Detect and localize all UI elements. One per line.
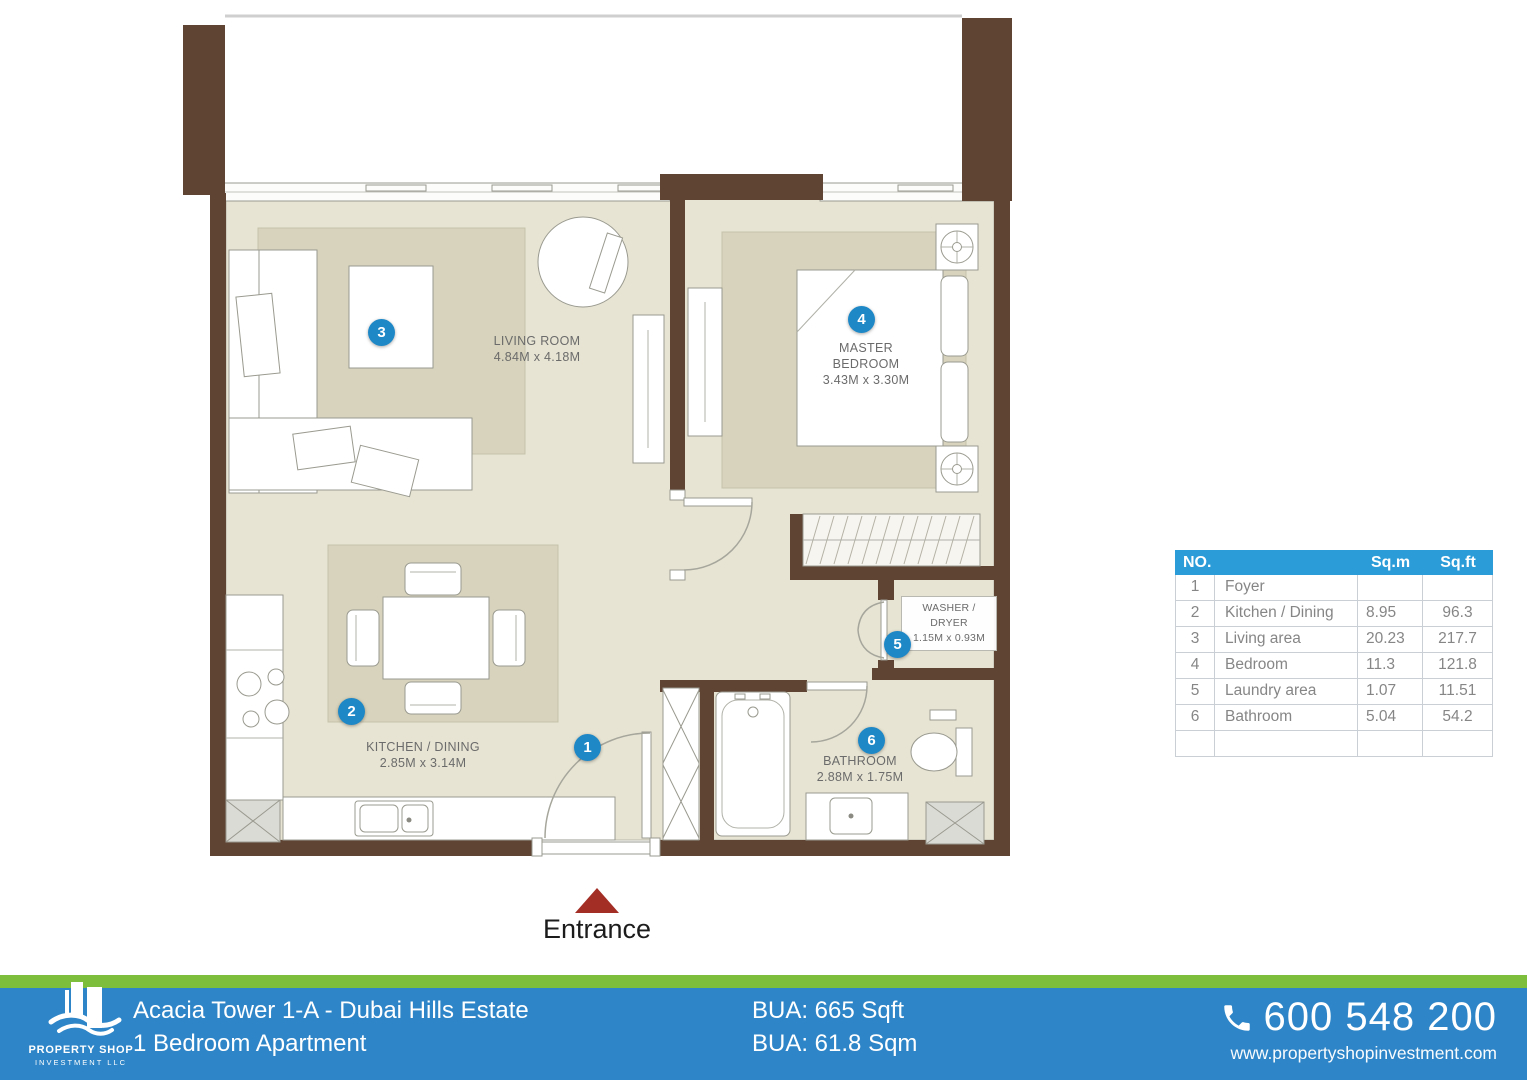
title-line1: Acacia Tower 1-A - Dubai Hills Estate (133, 994, 529, 1027)
washer-dims: 1.15M x 0.93M (902, 631, 996, 646)
dining-chair (347, 610, 379, 666)
title-line2: 1 Bedroom Apartment (133, 1027, 529, 1060)
coffee-table (349, 266, 433, 368)
cell-sqm: 1.07 (1358, 679, 1423, 704)
cell-no: 4 (1175, 653, 1215, 678)
bedroom-dims: 3.43M x 3.30M (823, 372, 910, 388)
living-room-dims: 4.84M x 4.18M (494, 349, 581, 365)
cell-name: Bedroom (1215, 653, 1358, 678)
cell-no: 5 (1175, 679, 1215, 704)
website-url: www.propertyshopinvestment.com (1220, 1043, 1497, 1064)
cell-no (1175, 731, 1215, 756)
header-no: NO. (1175, 550, 1358, 575)
contact-block: 600 548 200 www.propertyshopinvestment.c… (1220, 995, 1497, 1064)
armchair (538, 217, 628, 307)
footer-green-stripe (0, 975, 1527, 988)
cell-sqm (1358, 731, 1423, 756)
living-room-name: LIVING ROOM (494, 333, 581, 349)
cell-sqft: 217.7 (1423, 627, 1493, 652)
cell-no: 6 (1175, 705, 1215, 730)
bua-info: BUA: 665 Sqft BUA: 61.8 Sqm (752, 994, 917, 1060)
table-row: 3 Living area 20.23 217.7 (1175, 627, 1493, 653)
dining-chair (405, 682, 461, 714)
bua-sqm: BUA: 61.8 Sqm (752, 1027, 917, 1060)
bathroom-name: BATHROOM (817, 753, 904, 769)
marker-bedroom: 4 (848, 306, 875, 333)
cell-sqft: 121.8 (1423, 653, 1493, 678)
living-room-label: LIVING ROOM 4.84M x 4.18M (494, 333, 581, 365)
cell-sqft: 96.3 (1423, 601, 1493, 626)
stove-burner (265, 700, 289, 724)
table-row: 6 Bathroom 5.04 54.2 (1175, 705, 1493, 731)
shaft-bottom-right (926, 802, 984, 844)
cell-name: Laundry area (1215, 679, 1358, 704)
stove-burner (268, 669, 284, 685)
table-row: 2 Kitchen / Dining 8.95 96.3 (1175, 601, 1493, 627)
bathroom-label: BATHROOM 2.88M x 1.75M (817, 753, 904, 785)
table-row: 4 Bedroom 11.3 121.8 (1175, 653, 1493, 679)
kitchen-label: KITCHEN / DINING 2.85M x 3.14M (366, 739, 480, 771)
nightstand-lamp-bottom (936, 446, 978, 492)
dining-table (383, 597, 489, 679)
cell-sqm: 20.23 (1358, 627, 1423, 652)
cell-no: 1 (1175, 575, 1215, 600)
header-sqm: Sq.m (1358, 550, 1423, 575)
logo-text-line2: INVESTMENT LLC (22, 1058, 140, 1067)
washer-name-line1: WASHER / (902, 601, 996, 616)
table-row (1175, 731, 1493, 757)
cell-sqft: 11.51 (1423, 679, 1493, 704)
dining-chair (493, 610, 525, 666)
nightstand-lamp-top (936, 224, 978, 270)
kitchen-sink (355, 801, 433, 836)
marker-living: 3 (368, 319, 395, 346)
listing-title: Acacia Tower 1-A - Dubai Hills Estate 1 … (133, 994, 529, 1060)
bedroom-name-line2: BEDROOM (823, 356, 910, 372)
company-logo: PROPERTY SHOP INVESTMENT LLC (22, 980, 140, 1067)
bathroom-dims: 2.88M x 1.75M (817, 769, 904, 785)
pillow (941, 276, 968, 356)
cell-no: 2 (1175, 601, 1215, 626)
area-table: NO. Sq.m Sq.ft 1 Foyer 2 Kitchen / Dinin… (1175, 550, 1493, 757)
bedroom-wardrobe (688, 288, 722, 436)
washer-dryer-label: WASHER / DRYER 1.15M x 0.93M (901, 596, 997, 651)
phone-row: 600 548 200 (1220, 995, 1497, 1040)
cell-no: 3 (1175, 627, 1215, 652)
cell-sqm (1358, 575, 1423, 600)
marker-foyer: 1 (574, 734, 601, 761)
cell-name: Bathroom (1215, 705, 1358, 730)
window-band (218, 183, 995, 201)
bedroom-name-line1: MASTER (823, 340, 910, 356)
bua-sqft: BUA: 665 Sqft (752, 994, 917, 1027)
phone-icon (1220, 1001, 1254, 1035)
stove-burner (237, 672, 261, 696)
logo-text-line1: PROPERTY SHOP (22, 1044, 140, 1056)
area-table-header: NO. Sq.m Sq.ft (1175, 550, 1493, 575)
cell-sqft (1423, 731, 1493, 756)
cell-name: Foyer (1215, 575, 1358, 600)
cell-sqm: 8.95 (1358, 601, 1423, 626)
shaft-bottom-left (226, 800, 280, 842)
kitchen-name: KITCHEN / DINING (366, 739, 480, 755)
kitchen-dims: 2.85M x 3.14M (366, 755, 480, 771)
tv-cabinet (633, 315, 664, 463)
header-sqft: Sq.ft (1423, 550, 1493, 575)
floor-plan (0, 0, 1527, 1080)
cell-name: Kitchen / Dining (1215, 601, 1358, 626)
brochure-page: LIVING ROOM 4.84M x 4.18M MASTER BEDROOM… (0, 0, 1527, 1080)
cell-sqm: 11.3 (1358, 653, 1423, 678)
marker-bathroom: 6 (858, 727, 885, 754)
table-row: 5 Laundry area 1.07 11.51 (1175, 679, 1493, 705)
master-bedroom-label: MASTER BEDROOM 3.43M x 3.30M (823, 340, 910, 388)
building-waves-logo-icon (35, 980, 127, 1038)
pillar-left (183, 25, 225, 195)
vanity-sink (806, 793, 908, 840)
table-row: 1 Foyer (1175, 575, 1493, 601)
cell-name (1215, 731, 1358, 756)
foyer-closet (663, 688, 699, 840)
washer-name-line2: DRYER (902, 616, 996, 631)
entrance-arrow (575, 888, 619, 913)
cell-name: Living area (1215, 627, 1358, 652)
entrance-label: Entrance (543, 914, 651, 945)
pillow (941, 362, 968, 442)
cell-sqft: 54.2 (1423, 705, 1493, 730)
cell-sqft (1423, 575, 1493, 600)
dining-chair (405, 563, 461, 595)
marker-kitchen: 2 (338, 698, 365, 725)
pillar-right (962, 18, 1012, 201)
bathtub (716, 692, 790, 836)
cell-sqm: 5.04 (1358, 705, 1423, 730)
stove-burner (243, 711, 259, 727)
marker-washer: 5 (884, 631, 911, 658)
phone-number: 600 548 200 (1264, 995, 1497, 1040)
closet-hatched (803, 514, 980, 566)
